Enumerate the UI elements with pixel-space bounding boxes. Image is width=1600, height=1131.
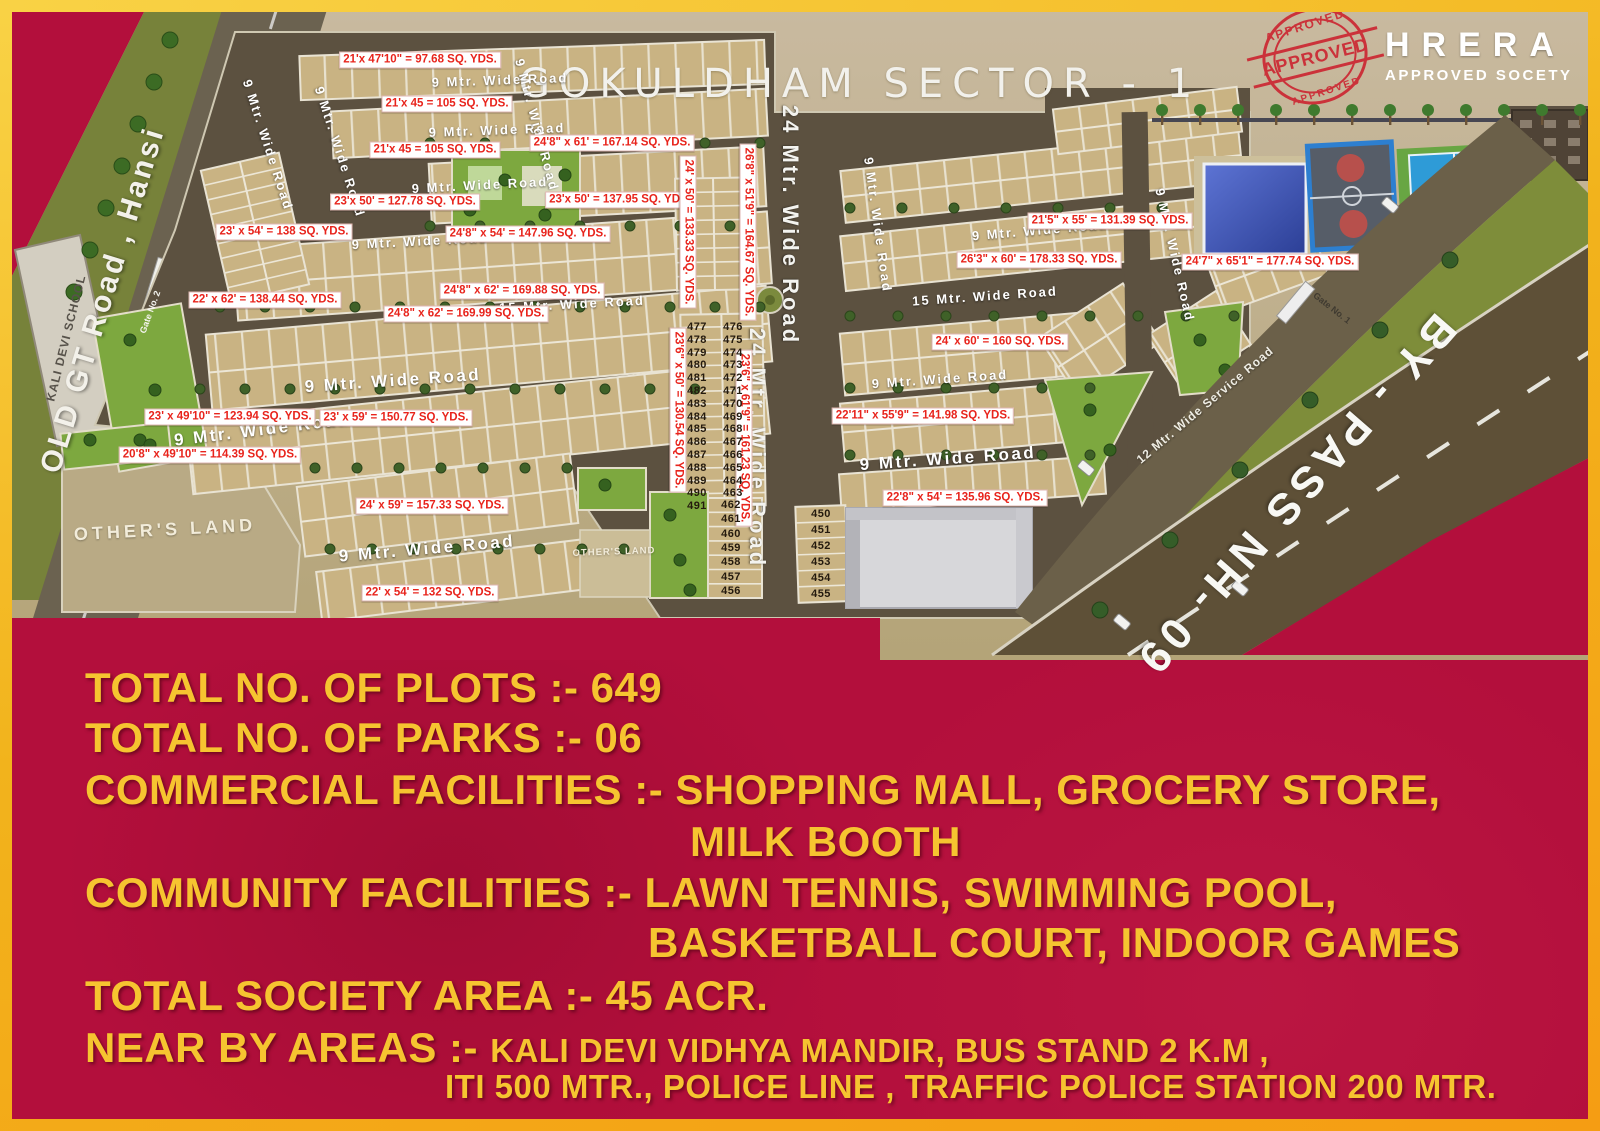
detail-line: TOTAL NO. OF PLOTS :- 649 <box>85 664 662 712</box>
detail-text: TOTAL NO. OF PARKS :- 06 <box>85 714 642 761</box>
detail-line: NEAR BY AREAS :- KALI DEVI VIDHYA MANDIR… <box>85 1024 1269 1072</box>
project-details: TOTAL NO. OF PLOTS :- 649TOTAL NO. OF PA… <box>0 0 1600 1131</box>
detail-text: BASKETBALL COURT, INDOOR GAMES <box>648 919 1460 966</box>
site-plan-poster: GOKULDHAM SECTOR - 1 9 Mtr. Wide Road9 M… <box>0 0 1600 1131</box>
detail-line: BASKETBALL COURT, INDOOR GAMES <box>648 919 1460 967</box>
detail-text: COMMERCIAL FACILITIES :- SHOPPING MALL, … <box>85 766 1441 813</box>
detail-text: NEAR BY AREAS :- <box>85 1024 490 1071</box>
detail-text: MILK BOOTH <box>690 818 961 865</box>
detail-text: TOTAL SOCIETY AREA :- 45 ACR. <box>85 972 768 1019</box>
detail-line: MILK BOOTH <box>690 818 961 866</box>
detail-text: COMMUNITY FACILITIES :- LAWN TENNIS, SWI… <box>85 869 1337 916</box>
detail-line: TOTAL NO. OF PARKS :- 06 <box>85 714 642 762</box>
detail-line: COMMUNITY FACILITIES :- LAWN TENNIS, SWI… <box>85 869 1337 917</box>
hrera-logo: HRERA APPROVED SOCETY <box>1385 26 1573 84</box>
hrera-tagline: APPROVED SOCETY <box>1385 67 1573 84</box>
hrera-name: HRERA <box>1385 26 1573 65</box>
detail-text: KALI DEVI VIDHYA MANDIR, BUS STAND 2 K.M… <box>490 1032 1269 1069</box>
detail-text: ITI 500 MTR., POLICE LINE , TRAFFIC POLI… <box>445 1068 1496 1105</box>
detail-line: TOTAL SOCIETY AREA :- 45 ACR. <box>85 972 768 1020</box>
detail-text: TOTAL NO. OF PLOTS :- 649 <box>85 664 662 711</box>
detail-line: COMMERCIAL FACILITIES :- SHOPPING MALL, … <box>85 766 1441 814</box>
detail-line: ITI 500 MTR., POLICE LINE , TRAFFIC POLI… <box>445 1068 1496 1106</box>
